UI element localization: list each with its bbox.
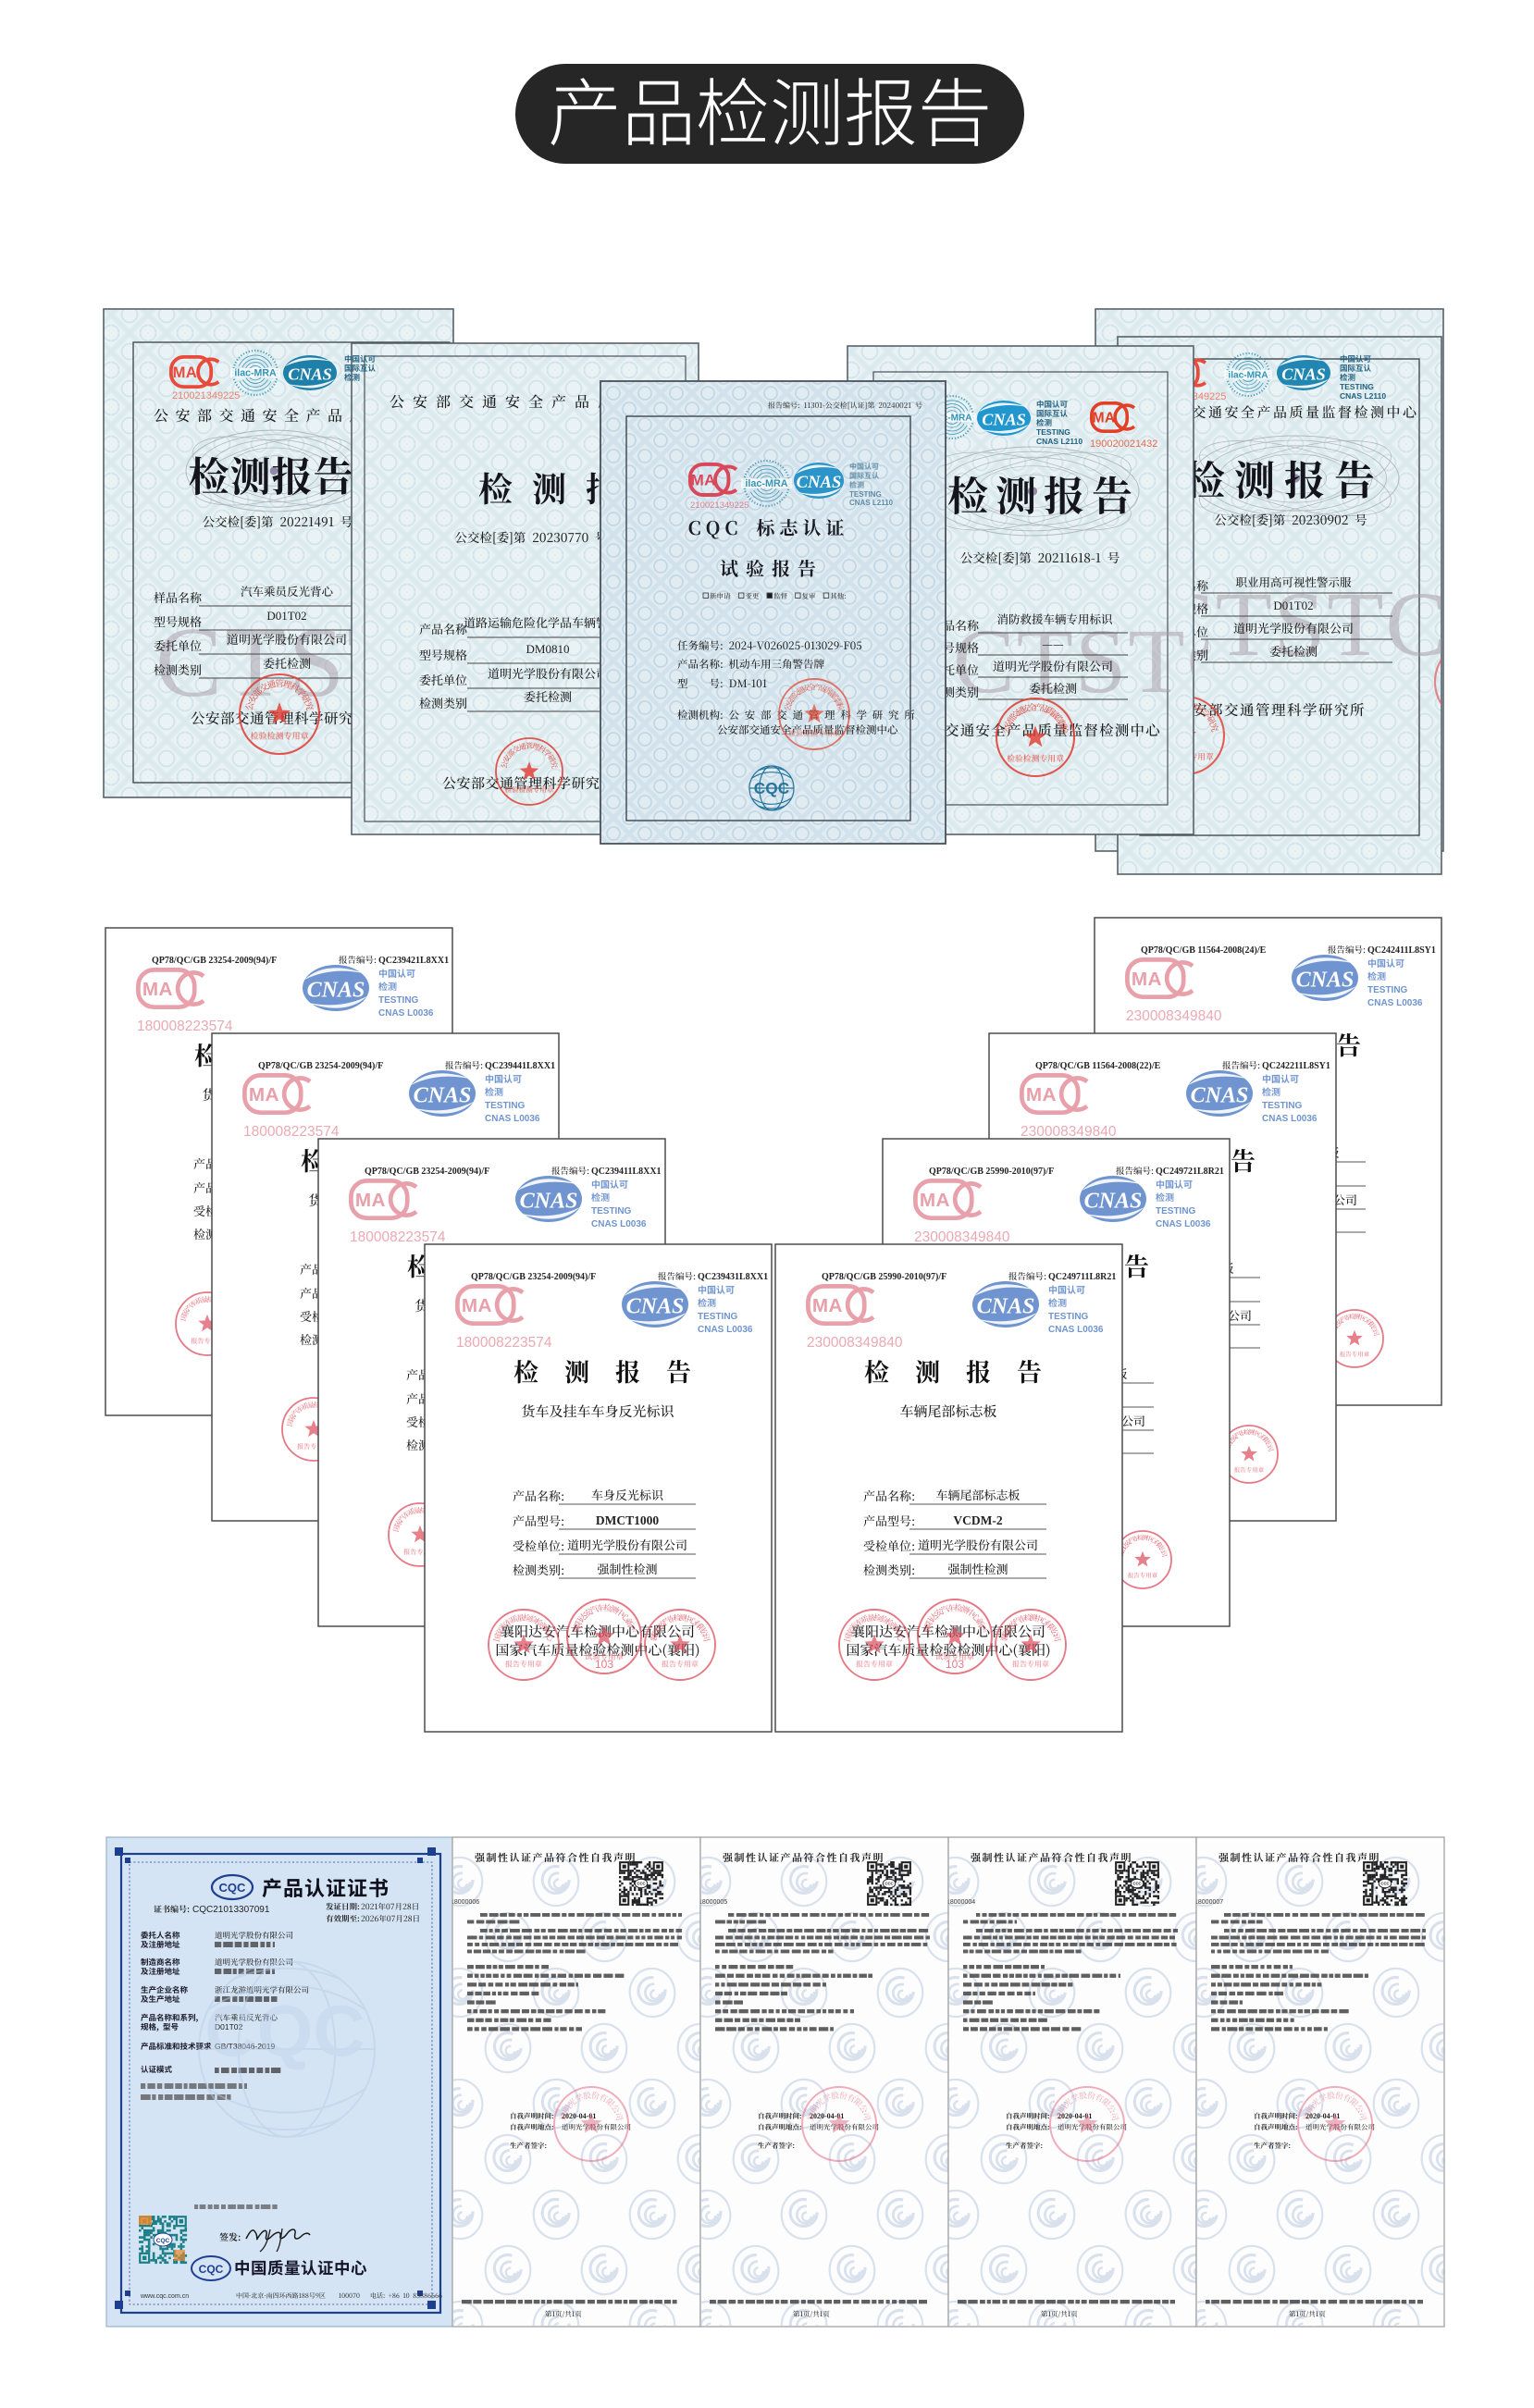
svg-text:CQC: CQC [156,2238,170,2244]
svg-text:QP78/QC/GB 25990-2010(97)/F: QP78/QC/GB 25990-2010(97)/F [929,1167,1054,1177]
svg-text:CNAS L0036: CNAS L0036 [698,1325,753,1335]
svg-text:TESTING: TESTING [1156,1206,1196,1216]
svg-text:QC249721L8R21: QC249721L8R21 [1156,1167,1224,1177]
svg-text:210021349225: 210021349225 [172,390,240,401]
svg-text:CNAS: CNAS [414,1084,472,1108]
svg-text:QP78/QC/GB 25990-2010(97)/F: QP78/QC/GB 25990-2010(97)/F [822,1272,946,1282]
svg-text:18000006: 18000006 [451,1899,479,1906]
svg-text:QP78/QC/GB 23254-2009(94)/F: QP78/QC/GB 23254-2009(94)/F [471,1272,596,1282]
svg-text:CNAS: CNAS [1296,969,1355,993]
svg-text:18000005: 18000005 [699,1899,727,1906]
svg-text:MA: MA [1026,1084,1057,1105]
svg-text:QP78/QC/GB 23254-2009(94)/F: QP78/QC/GB 23254-2009(94)/F [152,956,277,966]
svg-text:TESTING: TESTING [591,1206,632,1216]
svg-text:MA: MA [1093,411,1116,426]
svg-text:CNAS: CNAS [520,1190,578,1214]
svg-text:TESTING: TESTING [849,490,882,499]
svg-text:QC249711L8R21: QC249711L8R21 [1048,1272,1116,1282]
svg-text:CNAS: CNAS [288,364,332,383]
svg-text:103: 103 [595,1658,613,1671]
svg-text:CNAS: CNAS [307,979,365,1003]
svg-text:CNAS: CNAS [626,1295,685,1319]
svg-text:TESTING: TESTING [1340,382,1374,391]
svg-text:CNAS L2110: CNAS L2110 [1340,391,1386,401]
svg-text:180008223574: 180008223574 [456,1335,552,1351]
svg-text:QC242211L8SY1: QC242211L8SY1 [1262,1061,1330,1071]
svg-text:CNAS L0036: CNAS L0036 [1262,1114,1318,1124]
svg-text:CNAS L0036: CNAS L0036 [1156,1219,1211,1229]
svg-text:CNAS L2110: CNAS L2110 [849,499,894,507]
svg-text:180008223574: 180008223574 [137,1019,233,1034]
svg-text:DM0810: DM0810 [526,642,570,656]
svg-text:MA: MA [249,1084,279,1105]
svg-text:ilac-MRA: ilac-MRA [234,368,277,379]
svg-text:CCC: CCC [637,1882,645,1886]
svg-text:TESTING: TESTING [698,1312,738,1322]
svg-text:MA: MA [462,1295,492,1316]
svg-text:TESTING: TESTING [1036,427,1070,437]
svg-text:CNAS L2110: CNAS L2110 [1036,437,1082,446]
svg-text:QP78/QC/GB 11564-2008(22)/E: QP78/QC/GB 11564-2008(22)/E [1035,1061,1161,1071]
svg-text:MA: MA [812,1295,843,1316]
svg-text:CQC21013307091: CQC21013307091 [192,1905,270,1915]
svg-text:210021349225: 210021349225 [690,500,748,511]
svg-text:MA: MA [1132,969,1162,990]
svg-text:MA: MA [920,1190,950,1211]
svg-text:TESTING: TESTING [1048,1312,1089,1322]
svg-text:TESTING: TESTING [1262,1101,1303,1111]
svg-text:CQC: CQC [219,1881,247,1895]
svg-text:CNAS L0036: CNAS L0036 [591,1219,647,1229]
svg-text:QC242411L8SY1: QC242411L8SY1 [1367,945,1436,956]
svg-text:ilac-MRA: ilac-MRA [745,478,787,489]
svg-text:CNAS L0036: CNAS L0036 [485,1114,540,1124]
svg-text:D01T02: D01T02 [266,609,306,623]
svg-text:CQC: CQC [199,2263,224,2276]
svg-text:CNAS: CNAS [977,1295,1035,1319]
svg-text:103: 103 [946,1658,964,1671]
svg-text:230008349840: 230008349840 [914,1229,1010,1245]
svg-text:180008223574: 180008223574 [243,1124,340,1140]
svg-text:190020021432: 190020021432 [1090,438,1157,450]
svg-text:CTSTC: CTSTC [1152,573,1449,675]
svg-text:CCC: CCC [885,1882,893,1886]
svg-text:QC239431L8XX1: QC239431L8XX1 [698,1272,768,1282]
svg-text:TESTING: TESTING [378,995,419,1006]
svg-text:CNAS: CNAS [797,473,842,492]
svg-text:MA: MA [355,1190,386,1211]
svg-text:TESTING: TESTING [485,1101,526,1111]
svg-text:CNAS: CNAS [1084,1190,1143,1214]
svg-text:CNAS: CNAS [982,410,1026,428]
svg-text:D01T02: D01T02 [1273,599,1313,612]
svg-text:230008349840: 230008349840 [1126,1008,1222,1024]
svg-text:QC239421L8XX1: QC239421L8XX1 [378,956,449,966]
svg-text:18000007: 18000007 [1194,1899,1223,1906]
svg-text:CQC: CQC [754,779,789,797]
svg-text:CNAS L0036: CNAS L0036 [1048,1325,1104,1335]
svg-text:CNAS L0036: CNAS L0036 [1367,998,1423,1008]
svg-text:VCDM-2: VCDM-2 [953,1513,1002,1527]
svg-text:CCC: CCC [1380,1882,1389,1886]
svg-text:MA: MA [691,472,716,489]
svg-text:DMCT1000: DMCT1000 [596,1513,659,1527]
svg-text:TESTING: TESTING [1367,985,1408,995]
svg-text:QC239441L8XX1: QC239441L8XX1 [485,1061,555,1071]
svg-text:MA: MA [173,364,197,381]
svg-text:CNAS: CNAS [1281,364,1326,383]
svg-text:QP78/QC/GB 23254-2009(94)/F: QP78/QC/GB 23254-2009(94)/F [258,1061,383,1071]
svg-text:ilac-MRA: ilac-MRA [1228,370,1268,380]
svg-text:230008349840: 230008349840 [807,1335,903,1351]
svg-text:www.cqc.com.cn: www.cqc.com.cn [140,2293,189,2300]
svg-text:CNAS: CNAS [1191,1084,1249,1108]
svg-text:QP78/QC/GB 23254-2009(94)/F: QP78/QC/GB 23254-2009(94)/F [365,1167,489,1177]
svg-text:QC239411L8XX1: QC239411L8XX1 [591,1167,662,1177]
svg-text:230008349840: 230008349840 [1021,1124,1117,1140]
svg-text:CQC: CQC [204,1990,365,2071]
svg-text:18000004: 18000004 [946,1899,975,1906]
svg-text:QP78/QC/GB 11564-2008(24)/E: QP78/QC/GB 11564-2008(24)/E [1141,945,1267,956]
svg-text:CNAS L0036: CNAS L0036 [378,1008,434,1019]
svg-text:180008223574: 180008223574 [350,1229,446,1245]
svg-text:CCC: CCC [1132,1882,1141,1886]
svg-text:MA: MA [142,979,173,1000]
